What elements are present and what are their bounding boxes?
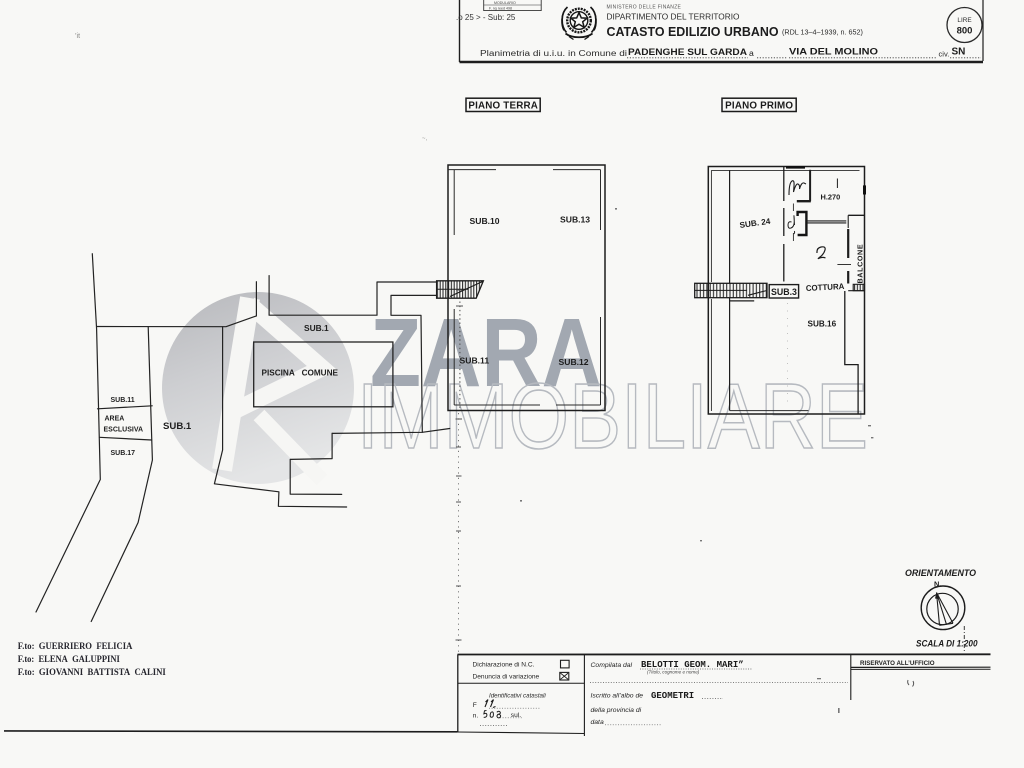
svg-text:(RDL 13–4–1939, n. 652): (RDL 13–4–1939, n. 652) bbox=[782, 27, 863, 36]
svg-text:della provincia di: della provincia di bbox=[591, 707, 642, 714]
svg-text:SUB.10: SUB.10 bbox=[470, 216, 500, 226]
svg-text:BALCONE: BALCONE bbox=[856, 244, 865, 284]
svg-text:GEOMETRI: GEOMETRI bbox=[651, 691, 694, 701]
svg-text:SCALA DI 1:200: SCALA DI 1:200 bbox=[916, 639, 978, 649]
svg-text:IMMOBILIARE: IMMOBILIARE bbox=[357, 364, 868, 468]
svg-text:ESCLUSIVA: ESCLUSIVA bbox=[104, 426, 144, 433]
svg-text:~,: ~, bbox=[422, 136, 428, 142]
svg-text:SUB.3: SUB.3 bbox=[771, 287, 797, 297]
svg-text:Planimetria di u.i.u. in C: Planimetria di u.i.u. in Comune di bbox=[480, 49, 627, 58]
svg-text:F.to: GIOVANNI BATTISTA CAL: F.to: GIOVANNI BATTISTA CALINI bbox=[18, 667, 166, 678]
svg-text:civ.: civ. bbox=[939, 49, 950, 58]
svg-text:SUB.17: SUB.17 bbox=[111, 450, 136, 457]
svg-text:data: data bbox=[591, 719, 604, 726]
svg-text:DIPARTIMENTO DEL TERRITORIO: DIPARTIMENTO DEL TERRITORIO bbox=[607, 12, 740, 21]
svg-text:LIRE: LIRE bbox=[957, 17, 971, 24]
svg-text:ORIENTAMENTO: ORIENTAMENTO bbox=[905, 568, 976, 578]
svg-text:PIANO PRIMO: PIANO PRIMO bbox=[725, 100, 793, 111]
svg-text:sul.: sul. bbox=[511, 712, 521, 719]
svg-text:BELOTTI GEOM. MARI”: BELOTTI GEOM. MARI” bbox=[641, 660, 744, 670]
svg-text:PADENGHE SUL GARDA: PADENGHE SUL GARDA bbox=[628, 47, 747, 58]
svg-text:Identificativi catastali: Identificativi catastali bbox=[489, 692, 546, 699]
svg-text:n.: n. bbox=[473, 712, 479, 719]
svg-text:Compilata dal: Compilata dal bbox=[591, 662, 633, 669]
svg-text:’it: ’it bbox=[75, 33, 80, 40]
svg-text:a: a bbox=[749, 48, 754, 58]
svg-text:Dichiarazione di N.C.: Dichiarazione di N.C. bbox=[473, 661, 535, 668]
svg-text:SUB.12: SUB.12 bbox=[559, 357, 589, 367]
svg-text:F. ng reed 498: F. ng reed 498 bbox=[489, 6, 512, 10]
svg-text:F: F bbox=[473, 702, 477, 709]
svg-text:(Titolo, cognome e nome): (Titolo, cognome e nome) bbox=[647, 670, 700, 675]
svg-text:MODULARIO: MODULARIO bbox=[494, 1, 516, 5]
svg-text:PISCINA COMUNE: PISCINA COMUNE bbox=[262, 368, 339, 378]
svg-text:VIA DEL MOLINO: VIA DEL MOLINO bbox=[789, 46, 878, 56]
svg-text:RISERVATO ALL’UFFICIO: RISERVATO ALL’UFFICIO bbox=[860, 660, 935, 667]
svg-text:H.270: H.270 bbox=[821, 193, 841, 202]
svg-text:SUB.13: SUB.13 bbox=[560, 215, 590, 225]
svg-text:AREA: AREA bbox=[105, 416, 125, 423]
svg-text:SN: SN bbox=[952, 46, 966, 57]
svg-text:PIANO TERRA: PIANO TERRA bbox=[468, 100, 538, 111]
svg-text:F.to: GUERRIERO FELICIA: F.to: GUERRIERO FELICIA bbox=[18, 641, 133, 652]
svg-text:Iscritto all’albo de: Iscritto all’albo de bbox=[591, 693, 644, 700]
svg-text:SUB.16: SUB.16 bbox=[808, 320, 837, 329]
svg-text:.o 25 > - Sub: 25: .o 25 > - Sub: 25 bbox=[456, 13, 516, 22]
svg-text:CATASTO EDILIZIO URBANO: CATASTO EDILIZIO URBANO bbox=[607, 25, 779, 39]
svg-text:SUB.11: SUB.11 bbox=[460, 356, 490, 366]
svg-text:800: 800 bbox=[957, 26, 973, 37]
svg-text:SUB.1: SUB.1 bbox=[304, 323, 329, 333]
svg-text:F.to: ELENA GALUPPINI: F.to: ELENA GALUPPINI bbox=[18, 654, 120, 665]
svg-text:SUB.11: SUB.11 bbox=[111, 397, 135, 404]
svg-text:SUB.1: SUB.1 bbox=[163, 421, 192, 432]
svg-text:Denuncia di variazione: Denuncia di variazione bbox=[473, 673, 540, 680]
svg-text:MINISTERO DELLE FINANZE: MINISTERO DELLE FINANZE bbox=[607, 5, 682, 11]
